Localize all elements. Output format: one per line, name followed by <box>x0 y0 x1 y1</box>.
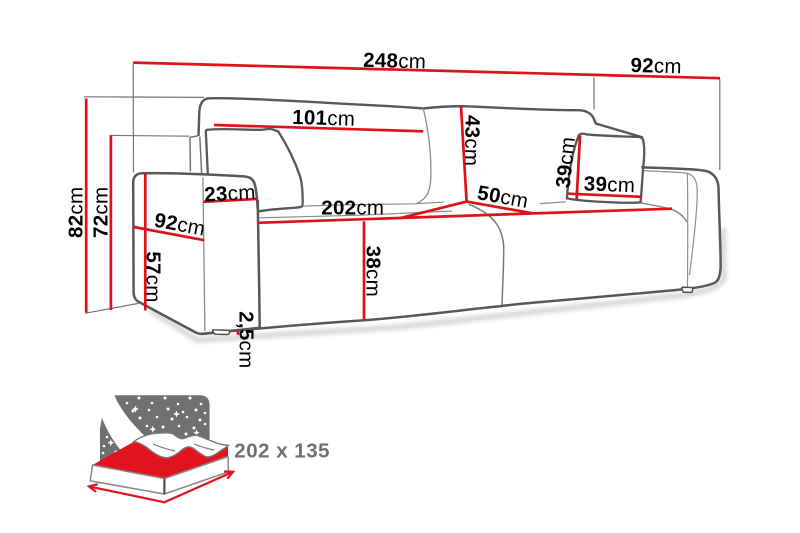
svg-text:39cm: 39cm <box>583 172 635 197</box>
svg-text:23cm: 23cm <box>204 181 256 207</box>
svg-text:248cm: 248cm <box>363 49 427 74</box>
svg-text:38cm: 38cm <box>362 246 385 297</box>
svg-text:57cm: 57cm <box>141 251 164 302</box>
svg-text:202 x 135: 202 x 135 <box>234 439 330 462</box>
svg-text:82cm: 82cm <box>64 187 87 238</box>
svg-text:72cm: 72cm <box>90 187 113 238</box>
svg-text:101cm: 101cm <box>292 106 356 131</box>
svg-text:43cm: 43cm <box>460 115 484 167</box>
svg-text:2,5cm: 2,5cm <box>235 311 258 368</box>
svg-text:202cm: 202cm <box>321 197 384 220</box>
svg-text:92cm: 92cm <box>630 54 682 78</box>
